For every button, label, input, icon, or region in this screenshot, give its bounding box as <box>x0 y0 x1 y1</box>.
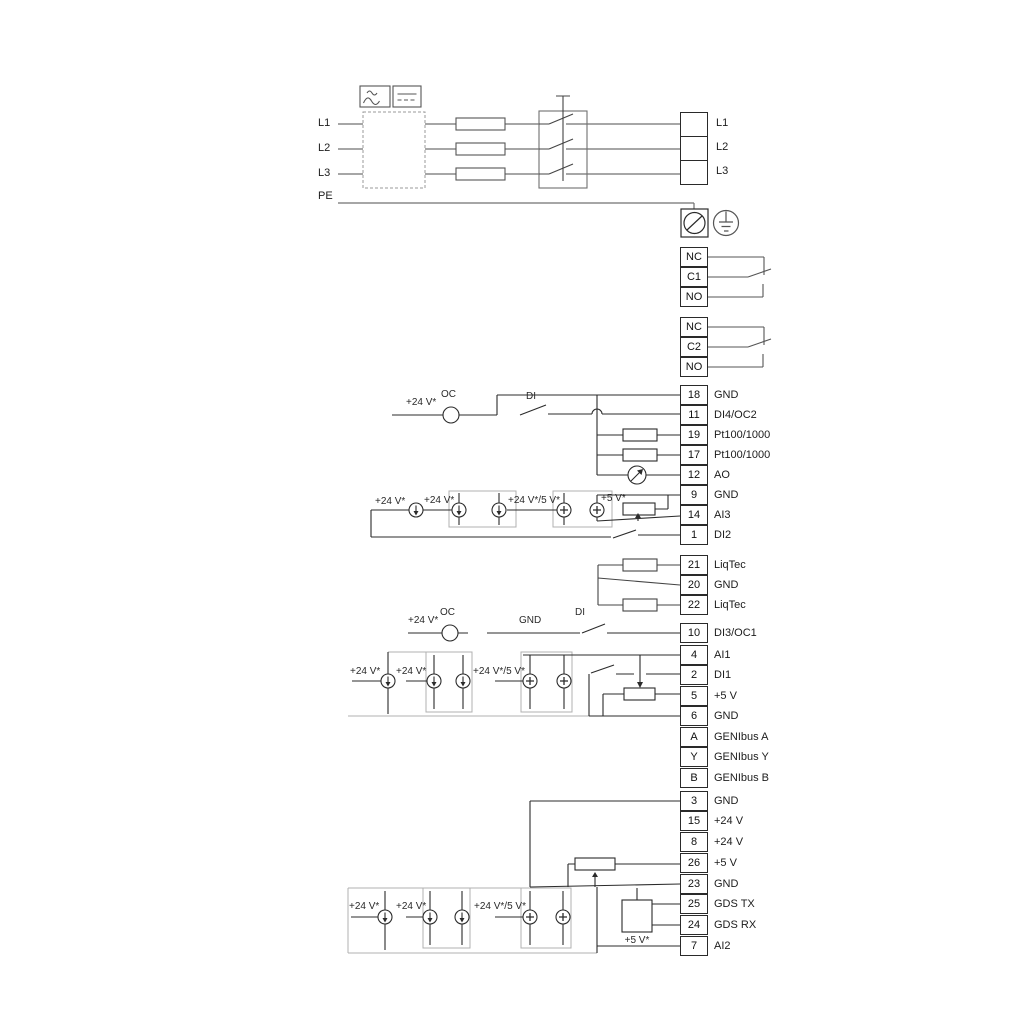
mains-wiring <box>338 124 694 209</box>
terminal-cell-6: 6 <box>680 706 708 726</box>
potentiometer <box>623 503 655 515</box>
terminal-label-5: +5 V <box>714 690 737 703</box>
ai2-gds-circuit <box>351 801 680 953</box>
v24-label: +24 V* <box>396 901 426 913</box>
terminal-label-11: DI4/OC2 <box>714 409 757 422</box>
v24-label: +24 V* <box>350 666 380 678</box>
terminal-cell-22: 22 <box>680 595 708 615</box>
terminal-label-6: GND <box>714 710 738 723</box>
terminal-label-4: AI1 <box>714 649 731 662</box>
phase-label-l1: L1 <box>318 117 330 130</box>
di3-oc1-circuit <box>408 624 680 641</box>
oc-source-icon <box>443 407 459 423</box>
di-label: DI <box>575 607 585 619</box>
ao-circuit <box>597 466 680 484</box>
wiring-canvas <box>0 0 1024 1024</box>
terminal-label-19: Pt100/1000 <box>714 429 770 442</box>
terminal-label-14: AI3 <box>714 509 731 522</box>
terminal-cell-23: 23 <box>680 874 708 894</box>
terminal-label-1: DI2 <box>714 529 731 542</box>
terminal-cell-11: 11 <box>680 405 708 425</box>
terminal-label-8: +24 V <box>714 836 743 849</box>
terminal-label-18: GND <box>714 389 738 402</box>
terminal-cell-15: 15 <box>680 811 708 831</box>
ai1-di1-circuit <box>352 652 680 716</box>
terminal-label-15: +24 V <box>714 815 743 828</box>
filter-box <box>363 112 425 188</box>
terminal-cell-24: 24 <box>680 915 708 935</box>
di-switch-blade <box>582 624 605 633</box>
dc-symbol-icon <box>393 86 421 107</box>
gnd-label: GND <box>519 615 541 627</box>
di2-switch-blade <box>613 530 636 538</box>
pt100-resistor <box>623 449 657 461</box>
terminal-cell-A: A <box>680 727 708 747</box>
potentiometer <box>575 858 615 870</box>
potentiometer <box>624 688 655 700</box>
terminal-cell-1: 1 <box>680 525 708 545</box>
terminal-cell-8: 8 <box>680 832 708 852</box>
mains-out-cell-l1 <box>680 112 708 137</box>
di-label: DI <box>526 391 536 403</box>
mains-out-label-l1: L1 <box>716 117 728 130</box>
terminal-cell-Y: Y <box>680 747 708 767</box>
terminal-cell-4: 4 <box>680 645 708 665</box>
di1-switch-blade <box>591 665 614 673</box>
terminal-cell-21: 21 <box>680 555 708 575</box>
terminal-label-7: AI2 <box>714 940 731 953</box>
terminal-label-A: GENIbus A <box>714 731 768 744</box>
wiring-diagram: L1 L2 L3 PE L1 L2 L3 NC C1 NO NC C2 NO 1… <box>0 0 1024 1024</box>
phase-label-l2: L2 <box>318 142 330 155</box>
relay2-contact <box>708 327 771 367</box>
v24-label: +24 V* <box>396 666 426 678</box>
earth-ground-icon <box>714 211 739 236</box>
terminal-label-26: +5 V <box>714 857 737 870</box>
terminal-cell-3: 3 <box>680 791 708 811</box>
v24-5v-label: +24 V*/5 V* <box>474 901 526 913</box>
liqtec-resistor <box>623 599 657 611</box>
v24-label: +24 V* <box>375 496 405 508</box>
terminal-cell-5: 5 <box>680 686 708 706</box>
v5-label: +5 V* <box>601 493 626 505</box>
v24-label: +24 V* <box>408 615 438 627</box>
terminal-label-2: DI1 <box>714 669 731 682</box>
v24-label: +24 V* <box>406 397 436 409</box>
terminal-label-Y: GENIbus Y <box>714 751 769 764</box>
v24-label: +24 V* <box>349 901 379 913</box>
terminal-label-25: GDS TX <box>714 898 755 911</box>
gds-sensor-box <box>622 900 652 932</box>
terminal-label-22: LiqTec <box>714 599 746 612</box>
mains-out-cell-l3 <box>680 160 708 185</box>
terminal-cell-B: B <box>680 768 708 788</box>
v5-label: +5 V* <box>618 935 656 947</box>
di-switch-blade <box>520 405 546 415</box>
oc-label: OC <box>441 389 456 401</box>
oc-source-icon <box>442 625 458 641</box>
relay2-cell-nc: NC <box>680 317 708 337</box>
relay1-cell-no: NO <box>680 287 708 307</box>
terminal-label-23: GND <box>714 878 738 891</box>
v24-5v-label: +24 V*/5 V* <box>508 495 560 507</box>
terminal-label-21: LiqTec <box>714 559 746 572</box>
ac-symbol-icon <box>360 86 390 107</box>
oc-label: OC <box>440 607 455 619</box>
terminal-cell-19: 19 <box>680 425 708 445</box>
terminal-label-12: AO <box>714 469 730 482</box>
terminal-cell-9: 9 <box>680 485 708 505</box>
terminal-cell-18: 18 <box>680 385 708 405</box>
terminal-label-9: GND <box>714 489 738 502</box>
pt100-resistor <box>623 429 657 441</box>
mains-out-label-l3: L3 <box>716 165 728 178</box>
terminal-cell-20: 20 <box>680 575 708 595</box>
terminal-label-10: DI3/OC1 <box>714 627 757 640</box>
terminal-cell-12: 12 <box>680 465 708 485</box>
liqtec-circuit <box>598 559 680 611</box>
liqtec-resistor <box>623 559 657 571</box>
ai1-option-boxes <box>348 652 589 716</box>
relay1-contact <box>708 257 771 297</box>
terminal-cell-10: 10 <box>680 623 708 643</box>
terminal-label-17: Pt100/1000 <box>714 449 770 462</box>
terminal-label-20: GND <box>714 579 738 592</box>
terminal-label-24: GDS RX <box>714 919 756 932</box>
screw-terminal-icon <box>681 209 708 237</box>
v24-5v-label: +24 V*/5 V* <box>473 666 525 678</box>
terminal-cell-7: 7 <box>680 936 708 956</box>
phase-label-l3: L3 <box>318 167 330 180</box>
relay2-cell-no: NO <box>680 357 708 377</box>
terminal-cell-14: 14 <box>680 505 708 525</box>
terminal-cell-17: 17 <box>680 445 708 465</box>
relay1-cell-c1: C1 <box>680 267 708 287</box>
fuses <box>456 118 505 180</box>
relay1-cell-nc: NC <box>680 247 708 267</box>
mains-out-cell-l2 <box>680 136 708 161</box>
terminal-cell-2: 2 <box>680 665 708 685</box>
pt100-sensors <box>597 429 680 461</box>
v24-label: +24 V* <box>424 495 454 507</box>
terminal-cell-26: 26 <box>680 853 708 873</box>
terminal-cell-25: 25 <box>680 894 708 914</box>
terminal-label-B: GENIbus B <box>714 772 769 785</box>
pe-label: PE <box>318 190 333 203</box>
relay2-cell-c2: C2 <box>680 337 708 357</box>
terminal-label-3: GND <box>714 795 738 808</box>
mains-out-label-l2: L2 <box>716 141 728 154</box>
